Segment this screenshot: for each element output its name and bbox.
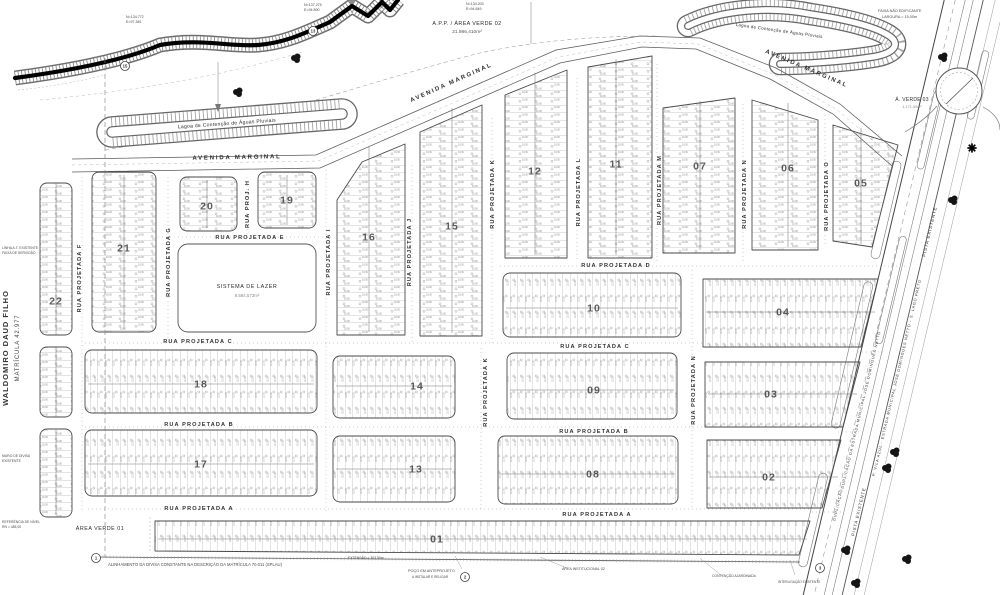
street-label: RUA PROJETADA C	[163, 339, 232, 345]
survey-marker-number: 15	[123, 64, 128, 69]
block-outline	[155, 521, 810, 555]
plan-layers: Lagoa de Contenção de Águas PluviaisLago…	[1, 0, 1000, 595]
tree-symbol	[890, 448, 900, 458]
block-06	[752, 100, 818, 250]
annotation: CONTENÇÃO AJARDINADA	[712, 573, 757, 578]
annotation: E=97.381	[126, 20, 142, 24]
street-label: RUA PROJETADA B	[164, 422, 233, 428]
block-number: 07	[693, 161, 707, 173]
block-outline	[588, 56, 652, 258]
site-plan-canvas: 10,00 10,00 10,00 10,00 Lagoa de Contenç…	[0, 0, 1000, 595]
tree-symbol	[841, 546, 851, 556]
block-07	[663, 98, 735, 253]
roundabout	[936, 68, 982, 114]
tree-symbol	[233, 88, 243, 98]
annotation: A INSTALAR E RELIGAR	[412, 575, 449, 579]
block-outline	[752, 100, 818, 250]
block	[40, 429, 72, 517]
block-number: 17	[194, 459, 208, 471]
annotation: REFERÊNCIA DE NÍVEL	[2, 519, 40, 524]
app-area-label: A.P.P. / ÁREA VERDE 02	[432, 20, 501, 27]
survey-marker-number: 13	[311, 29, 316, 34]
block-number: 12	[528, 166, 542, 178]
block-04	[703, 279, 878, 347]
owner-registry: MATRÍCULA 42.977	[14, 315, 21, 382]
block-14	[333, 356, 455, 418]
tree-symbol	[851, 579, 861, 589]
block-number: 10	[587, 303, 601, 315]
corridor-road-line	[864, 22, 1000, 595]
block-03	[705, 362, 860, 427]
block-number: 11	[609, 159, 622, 171]
annotation: N=134.203	[466, 2, 484, 6]
block-number: 05	[854, 178, 868, 190]
block-number: 14	[410, 381, 424, 393]
street-label: RUA PROJETADA J	[407, 218, 413, 287]
block-number: 13	[409, 464, 423, 476]
block-number: 06	[781, 163, 795, 175]
block-number: 02	[762, 472, 776, 484]
creek-bank	[15, 0, 398, 78]
street-label: RUA PROJETADA N	[742, 159, 748, 228]
block-22	[40, 183, 72, 335]
block-13	[333, 436, 455, 502]
tree-symbol	[902, 555, 912, 565]
road-label: PISTA EXISTENTE	[921, 206, 938, 257]
block-11	[588, 56, 652, 258]
annotation: N=134.772	[126, 15, 144, 19]
contour-line	[40, 52, 302, 100]
app-area-value: 21.986,410m²	[452, 29, 482, 35]
street-label: RUA PROJETADA D	[581, 263, 650, 269]
block-01	[155, 521, 810, 555]
annotation: FAIXA DE SERVIDÃO	[2, 250, 36, 255]
road-label: PISTA EXISTENTE	[850, 487, 866, 537]
street-label: RUA PROJETADA N	[691, 355, 697, 424]
annotation: EXTENSÃO = 303,50m	[348, 555, 384, 560]
street-label: RUA PROJ. H	[245, 180, 251, 228]
avenue-label: AVENIDA MARGINAL	[192, 154, 281, 162]
block-number: 18	[194, 379, 208, 391]
green-area-03-label: Á. VERDE 03	[895, 96, 929, 103]
block-outline	[705, 362, 860, 427]
street-label: RUA PROJETADA E	[215, 235, 284, 241]
roundabout-approach	[983, 107, 1000, 130]
annotation: ALINHAMENTO DA DIVISA CONSTANTE NA DESCR…	[108, 562, 283, 567]
annotation: POÇO EM ANTEPROJETO	[408, 569, 455, 573]
block-number: 15	[445, 221, 459, 233]
street-label: RUA PROJETADA A	[164, 506, 233, 512]
block-number: 21	[117, 243, 131, 255]
road-label: DUPLICAÇÃO	[831, 488, 843, 521]
block-outline	[703, 279, 878, 347]
block-outline	[663, 98, 735, 253]
roundabout-approach	[905, 106, 937, 132]
block-number: 03	[764, 389, 778, 401]
annotation: E=94.849	[466, 7, 482, 11]
star-symbol	[967, 143, 976, 152]
street-label: RUA PROJETADA M	[657, 155, 663, 225]
block-number: 08	[586, 469, 600, 481]
street-label: RUA PROJETADA K	[490, 159, 496, 228]
annotation: E=94.890	[304, 8, 320, 12]
street-label: RUA PROJETADA F	[77, 244, 83, 313]
block-number: 16	[362, 232, 376, 244]
annotation: LINHA A.T. EXISTENTE	[2, 246, 39, 250]
annotation: ÁREA INSTITUCIONAL 02	[562, 567, 605, 571]
annotation: INTERLIGAÇÃO EXISTENTE	[778, 579, 820, 584]
street-label: RUA PROJETADA I	[326, 229, 332, 296]
leisure-area-value: 8.584,573m²	[235, 293, 260, 298]
road-label: P. VILA AZUL - ESTRADA MUNICIPAL JOSÉ DO…	[871, 279, 922, 477]
road-median-strip	[875, 236, 907, 345]
street-label: RUA PROJETADA O	[824, 161, 830, 231]
block-12	[505, 70, 567, 258]
block-number: 04	[776, 307, 790, 319]
annotation: FAIXA NÃO EDIFICANTE	[878, 8, 922, 13]
street-label: RUA PROJETADA K	[483, 357, 489, 426]
annotation: N=137.275	[304, 3, 322, 7]
block-number: 01	[430, 534, 444, 546]
green-area-01-label: ÁREA VERDE 01	[76, 525, 124, 532]
tree-symbol	[948, 196, 958, 206]
block	[40, 347, 72, 417]
annotation: EXISTENTE	[2, 459, 22, 463]
block-number: 09	[587, 385, 601, 397]
leisure-area-label: SISTEMA DE LAZER	[217, 284, 278, 290]
street-label: RUA PROJETADA C	[560, 344, 629, 350]
owner-name: WALDOMIRO DAUD FILHO	[1, 290, 10, 406]
green-area-03-value: 1.171,50m²	[902, 105, 922, 109]
tree-symbol	[938, 53, 948, 63]
block-number: 19	[280, 195, 294, 207]
block-number: 20	[200, 201, 214, 213]
leader-line	[455, 556, 462, 569]
site-plan-drawing: 10,00 10,00 10,00 10,00 Lagoa de Contenç…	[0, 0, 1000, 595]
tree-symbol	[291, 54, 301, 64]
street-label: RUA PROJETADA G	[166, 227, 172, 297]
annotation: RN = 485,00	[2, 525, 21, 529]
block-number: 22	[49, 296, 63, 308]
block-outline	[505, 70, 567, 258]
street-label: RUA PROJETADA A	[562, 512, 631, 518]
block-outline	[333, 356, 455, 418]
annotation: MURO DE DIVISA	[2, 454, 31, 458]
street-label: RUA PROJETADA L	[576, 158, 582, 227]
annotation: LARGURA = 15,00m	[882, 15, 917, 19]
street-label: RUA PROJETADA B	[559, 429, 628, 435]
